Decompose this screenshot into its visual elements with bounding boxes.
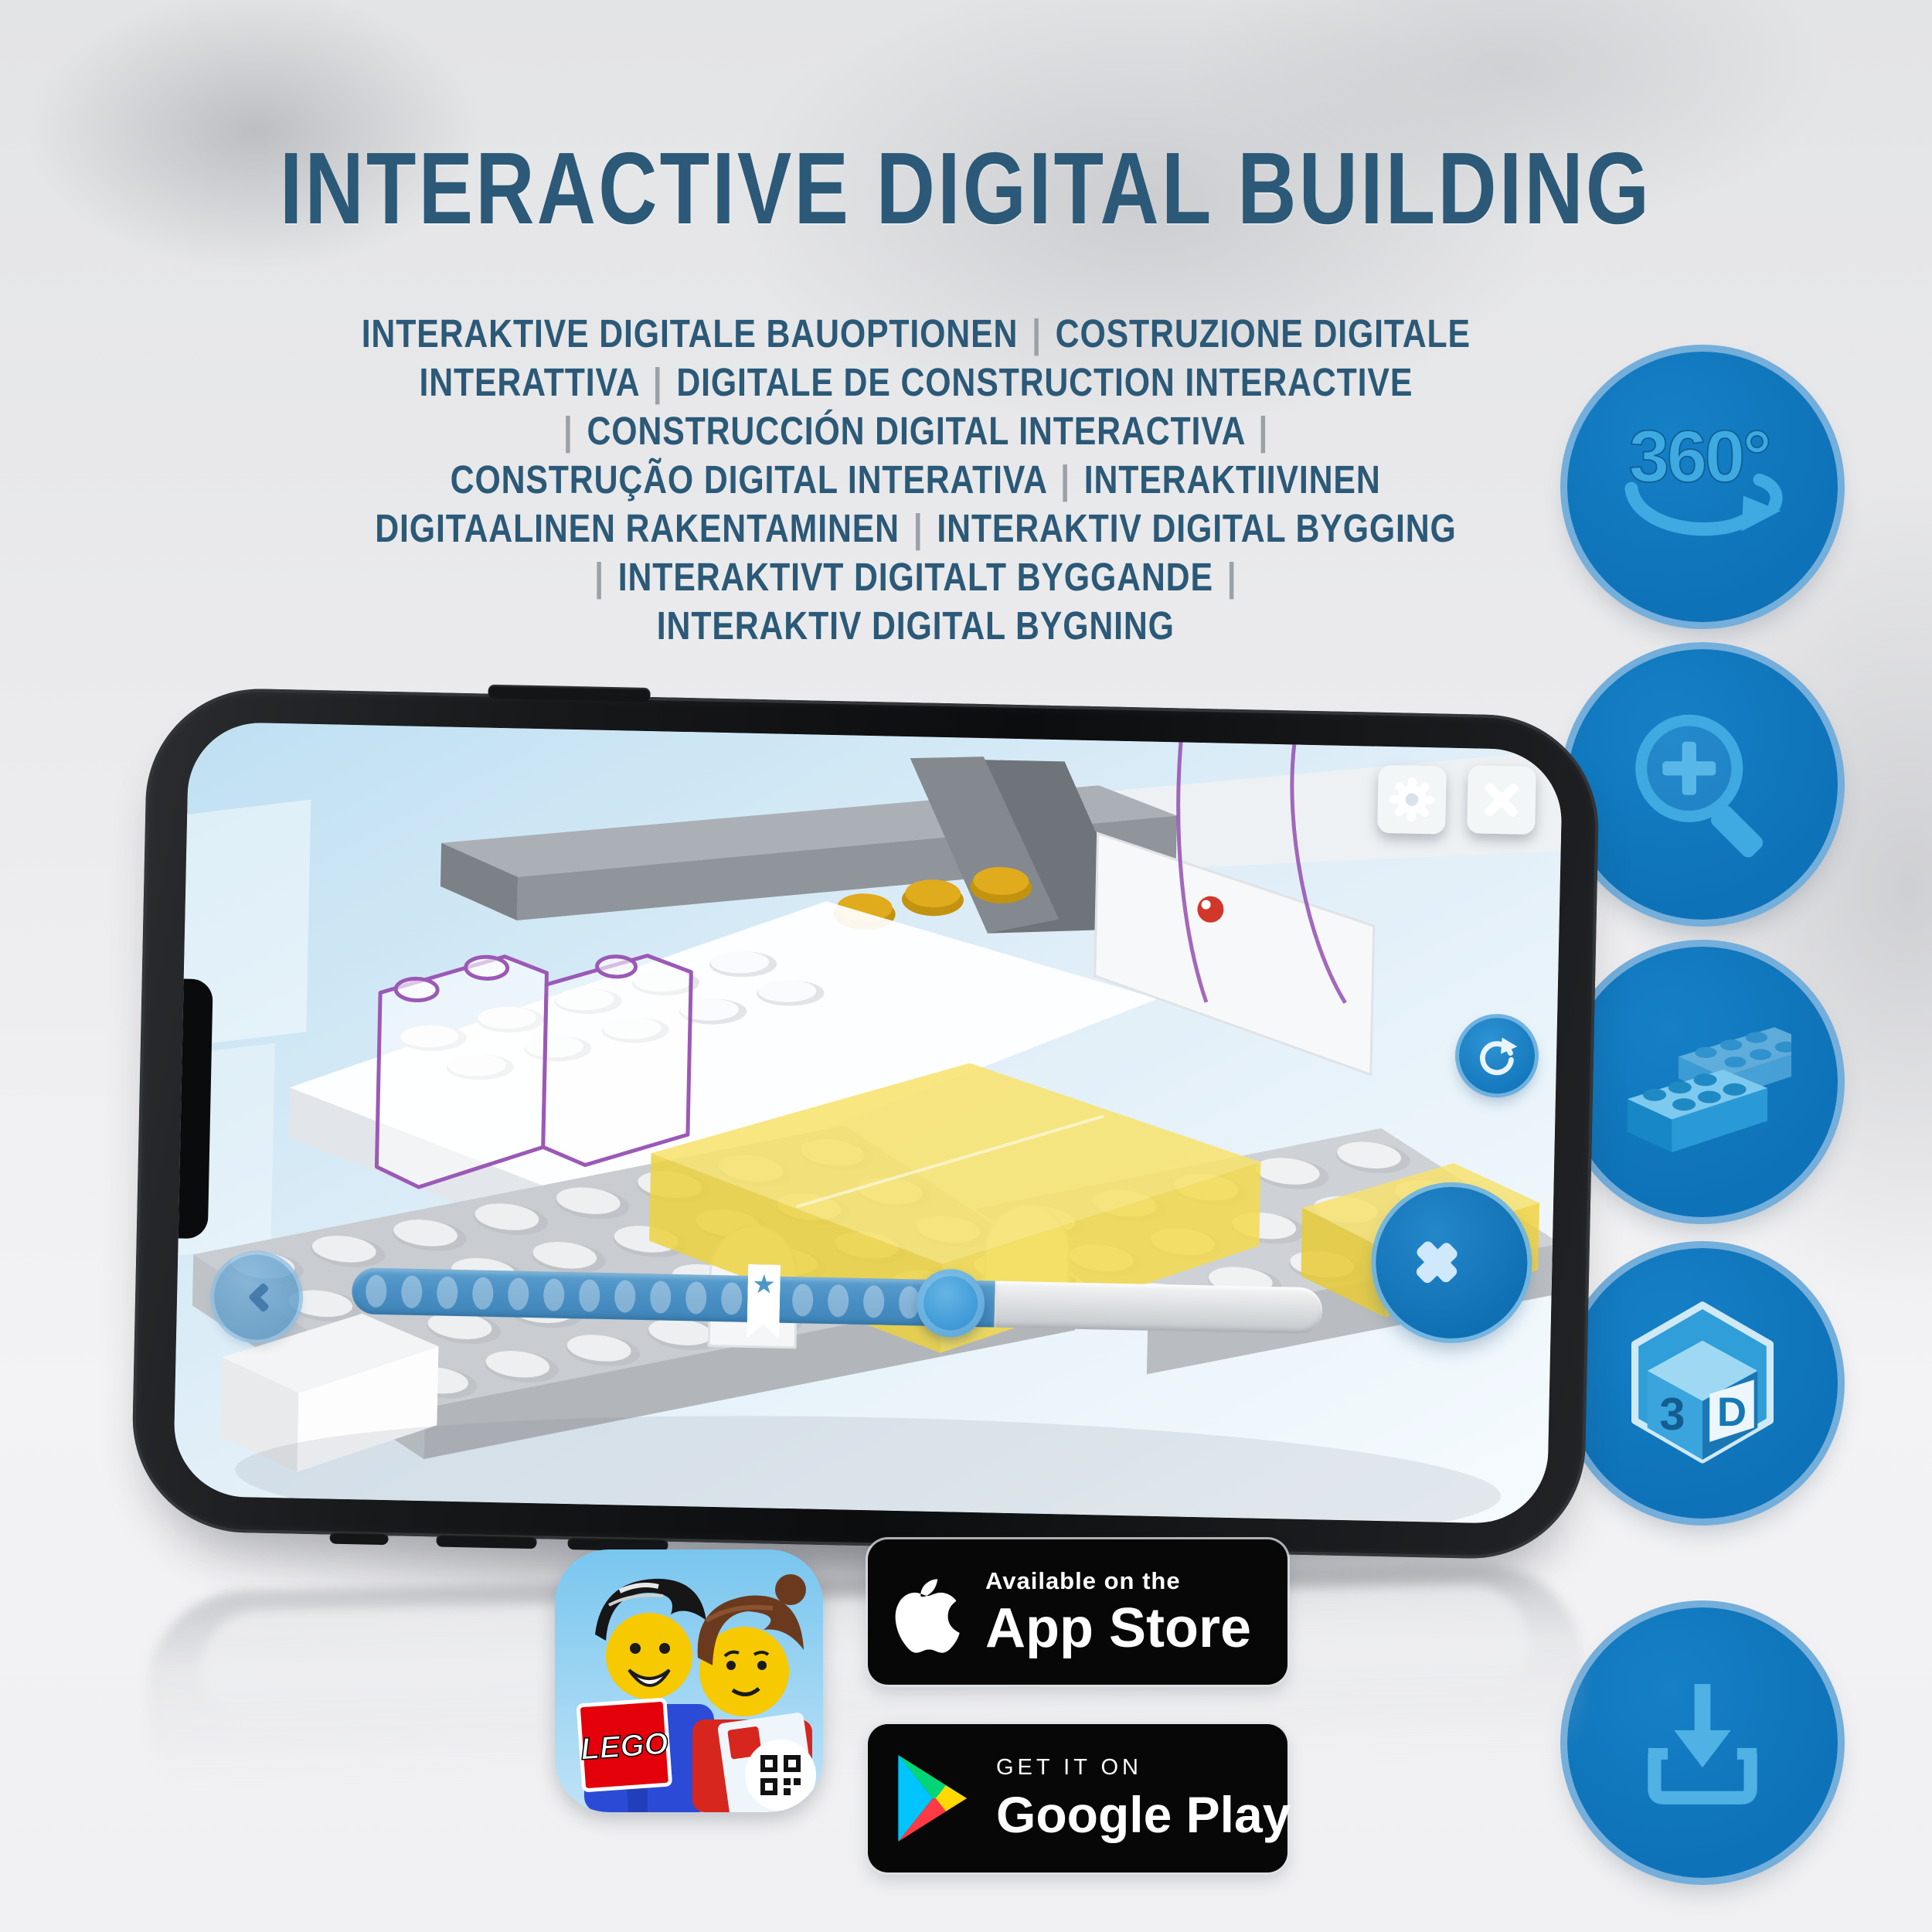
page-title: INTERACTIVE DIGITAL BUILDING (280, 130, 1651, 247)
x-icon (1475, 774, 1527, 825)
header: INTERACTIVE DIGITAL BUILDING (0, 130, 1932, 247)
3d-cube-icon: 3 D (1614, 1294, 1791, 1472)
chevron-left-icon (234, 1274, 280, 1320)
lego-brick-icon (1614, 993, 1791, 1171)
lego-3d-scene (173, 722, 1563, 1525)
apple-icon (891, 1569, 962, 1655)
subtitle-line: | CONSTRUCCIÓN DIGITAL INTERACTIVA | (560, 406, 1272, 455)
mute-switch (329, 1532, 388, 1546)
subtitle-line: DIGITAALINEN RAKENTAMINEN | INTERAKTIV D… (375, 504, 1456, 553)
svg-text:360°: 360° (1629, 416, 1769, 497)
poster: INTERACTIVE DIGITAL BUILDING INTERAKTIVE… (0, 0, 1932, 1932)
subtitle-block: INTERAKTIVE DIGITALE BAUOPTIONEN | COSTR… (0, 309, 1835, 650)
subtitle-line: INTERAKTIV DIGITAL BYGNING (657, 601, 1175, 650)
download-tray-icon (1614, 1654, 1791, 1832)
reflection-highlight (199, 1584, 1531, 1728)
magnifier-plus-icon (1614, 696, 1791, 873)
lego-logo: LEGO (577, 1699, 671, 1791)
feature-360-rotation: 360° (1567, 352, 1838, 622)
feature-3d-view: 3 D (1567, 1248, 1838, 1519)
subtitle-line: | INTERAKTIVT DIGITALT BYGGANDE | (590, 553, 1240, 601)
subtitle-line: CONSTRUÇÃO DIGITAL INTERATIVA | INTERAKT… (451, 455, 1381, 504)
app-store-badge[interactable]: Available on the App Store (868, 1539, 1287, 1685)
chevron-right-icon (1408, 1219, 1495, 1306)
google-play-icon (896, 1755, 973, 1842)
subtitle-line: INTERAKTIVE DIGITALE BAUOPTIONEN | COSTR… (361, 309, 1470, 358)
phone-notch (173, 978, 213, 1239)
feature-download (1567, 1607, 1838, 1878)
close-button[interactable] (1467, 765, 1536, 835)
slider-remaining-track (995, 1281, 1323, 1335)
circular-arrow-icon (1472, 1031, 1521, 1080)
feature-brick-options (1567, 947, 1838, 1217)
star-icon: ★ (752, 1264, 777, 1305)
360-degrees-icon: 360° (1614, 398, 1791, 576)
lego-app-icon-art: LEGO (555, 1549, 823, 1812)
lego-app-icon[interactable]: LEGO (555, 1549, 823, 1812)
google-play-tagline: GET IT ON (996, 1752, 1291, 1783)
phone-device: ★ (131, 686, 1600, 1560)
app-store-label: App Store (985, 1598, 1251, 1658)
google-play-badge[interactable]: GET IT ON Google Play (868, 1724, 1287, 1872)
app-screen: ★ (173, 722, 1563, 1525)
svg-text:D: D (1717, 1389, 1747, 1435)
gear-icon (1386, 774, 1437, 825)
app-store-tagline: Available on the (985, 1566, 1251, 1597)
subtitle-line: INTERATTIVA | DIGITALE DE CONSTRUCTION I… (419, 358, 1413, 406)
svg-text:LEGO: LEGO (580, 1726, 669, 1767)
phone-reflection (145, 1563, 1587, 1825)
settings-button[interactable] (1377, 765, 1447, 835)
volume-up-button (436, 1533, 536, 1549)
svg-text:3: 3 (1659, 1388, 1685, 1440)
power-button (488, 685, 650, 702)
feature-zoom-in (1567, 649, 1838, 920)
google-play-label: Google Play (996, 1784, 1291, 1845)
